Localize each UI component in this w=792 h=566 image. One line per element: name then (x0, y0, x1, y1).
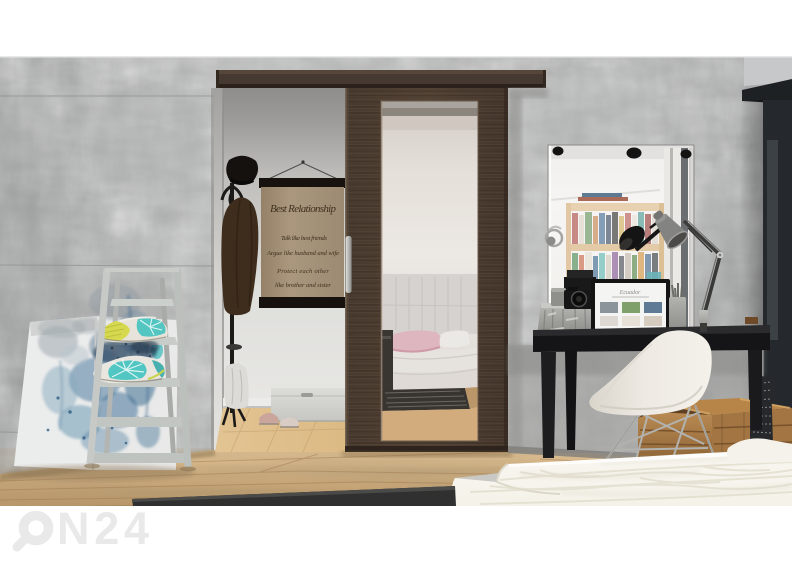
svg-text:like brother and sister: like brother and sister (275, 282, 331, 289)
svg-text:Ecuador: Ecuador (619, 290, 641, 296)
svg-text:Talk like best friends: Talk like best friends (281, 235, 327, 242)
svg-text:Argue like husband and wife: Argue like husband and wife (266, 250, 339, 257)
svg-text:Best Relationship: Best Relationship (270, 203, 337, 215)
svg-text:Protect each other: Protect each other (276, 268, 329, 275)
svg-text:N24: N24 (57, 503, 149, 554)
